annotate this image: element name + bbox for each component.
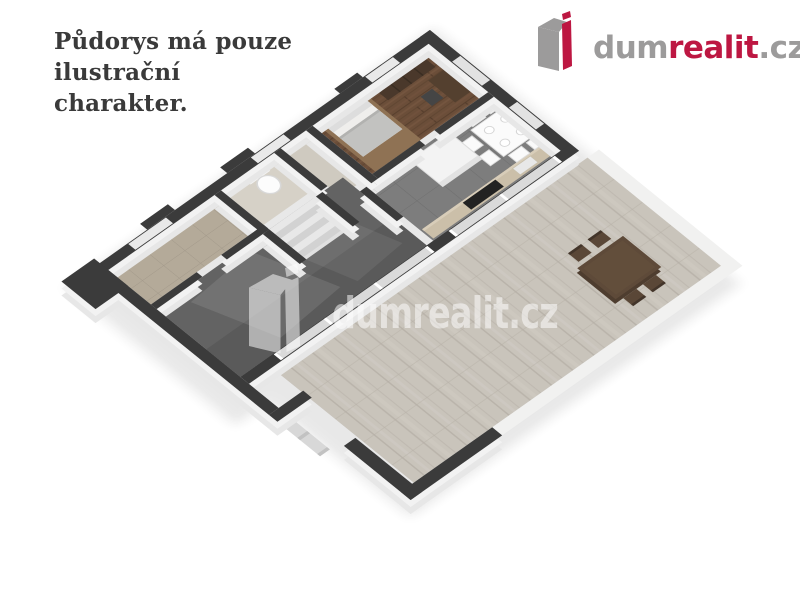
brand-building-icon [531,10,581,72]
disclaimer-line: charakter. [54,88,292,119]
logo-segment-realit: realit [668,30,758,66]
logo-segment-dum: dum [593,30,668,66]
disclaimer-line: Půdorys má pouze [54,26,292,57]
disclaimer-line: ilustrační [54,57,292,88]
watermark-text: dumrealit.cz [332,288,558,339]
logo-segment-cz: .cz [758,30,800,66]
brand-logo-text: dumrealit.cz [593,30,800,66]
floor-plan-image: dumrealit.cz Půdorys má pouze ilustrační… [0,0,800,600]
disclaimer-text: Půdorys má pouze ilustrační charakter. [54,26,292,119]
brand-logo: dumrealit.cz [531,10,800,72]
